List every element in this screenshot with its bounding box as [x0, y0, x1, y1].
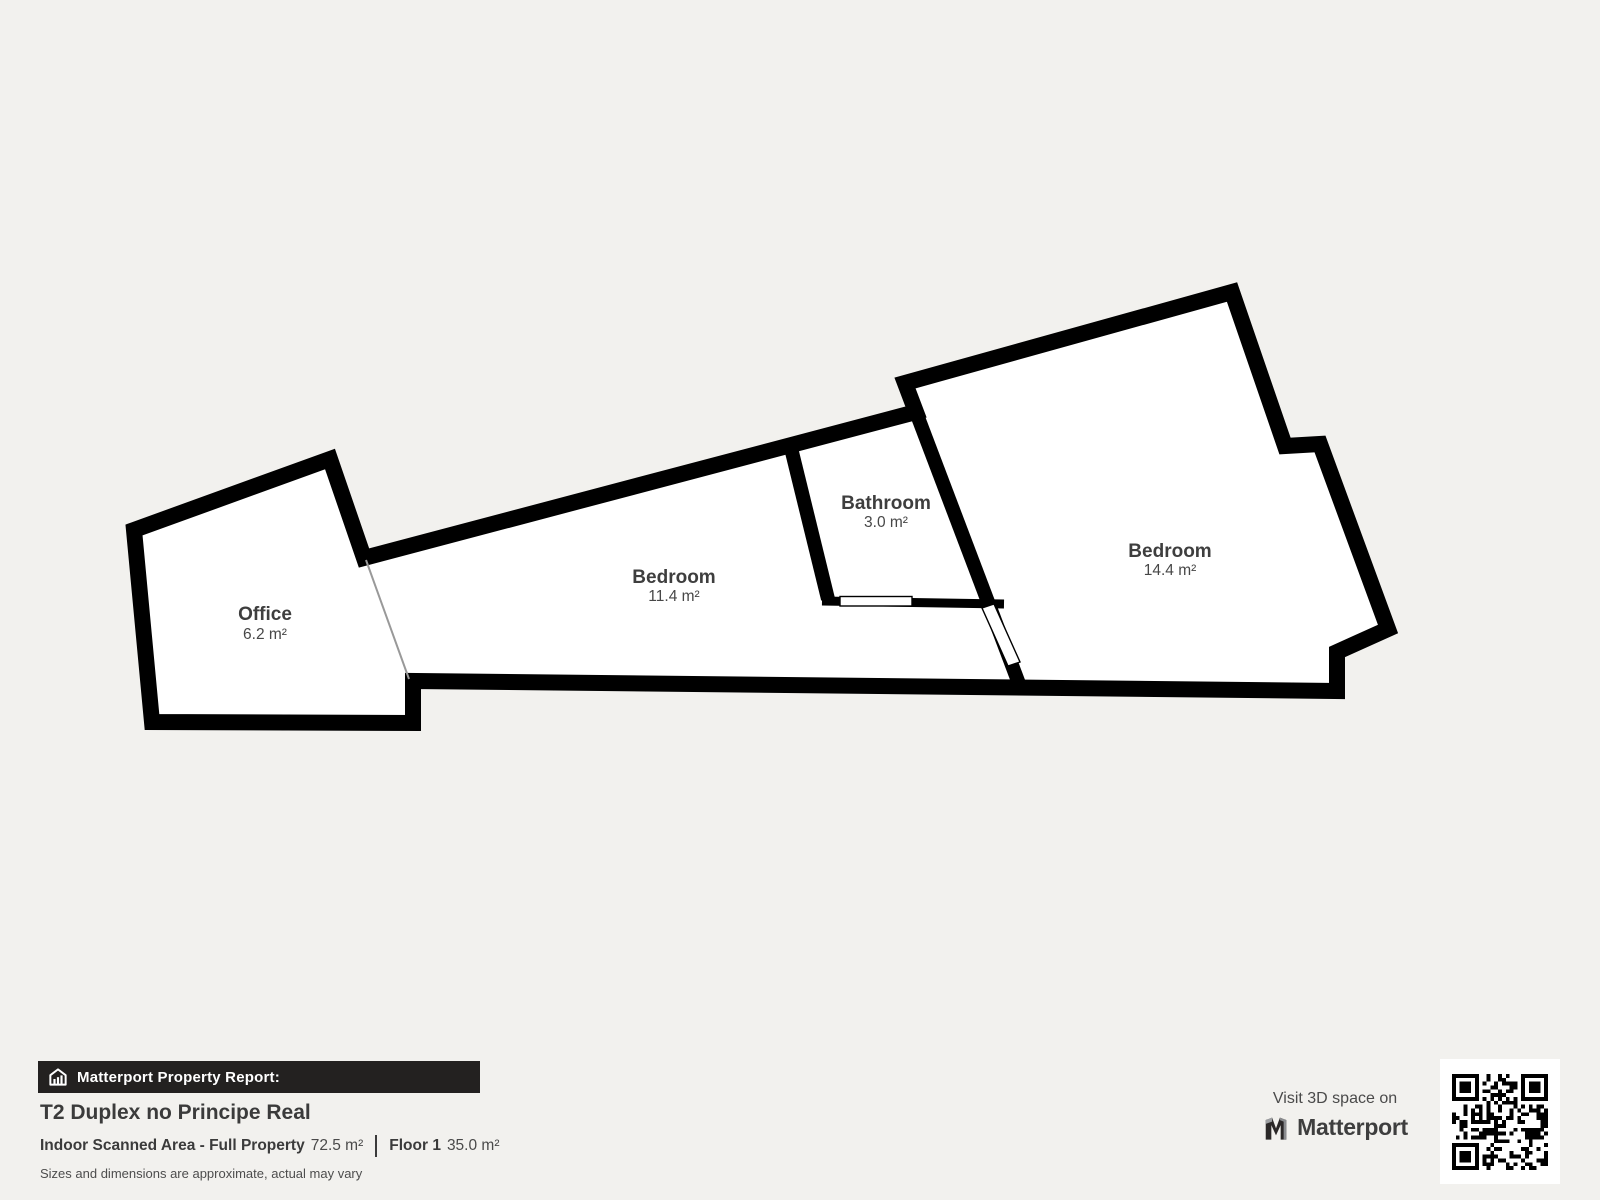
room-label-bedroom-2: Bedroom	[1128, 541, 1211, 562]
qr-code-pattern	[1452, 1074, 1548, 1170]
room-area-bedroom-2: 14.4 m²	[1144, 562, 1197, 579]
room-label-bathroom: Bathroom	[841, 493, 931, 514]
visit-3d-label: Visit 3D space on	[1243, 1090, 1427, 1108]
bathroom-window-icon	[840, 597, 912, 607]
disclaimer-text: Sizes and dimensions are approximate, ac…	[40, 1166, 362, 1181]
stats-divider	[375, 1135, 377, 1157]
room-area-office: 6.2 m²	[243, 626, 287, 643]
area-stats: Indoor Scanned Area - Full Property 72.5…	[40, 1135, 500, 1157]
floor-value: 35.0 m²	[447, 1137, 500, 1155]
unit-outline	[134, 292, 1388, 723]
qr-code	[1440, 1059, 1560, 1184]
matterport-floorplan-page: Office 6.2 m² Bedroom 11.4 m² Bathroom 3…	[0, 0, 1600, 1200]
scanned-area-label: Indoor Scanned Area - Full Property	[40, 1137, 305, 1155]
room-label-bedroom-1: Bedroom	[632, 567, 715, 588]
report-bar-label: Matterport Property Report:	[77, 1069, 280, 1086]
visit-3d-block: Visit 3D space on Matterport	[1243, 1090, 1427, 1141]
room-area-bathroom: 3.0 m²	[864, 514, 908, 531]
matterport-m-icon	[1262, 1113, 1290, 1141]
floor-plan: Office 6.2 m² Bedroom 11.4 m² Bathroom 3…	[0, 0, 1600, 1200]
room-area-bedroom-1: 11.4 m²	[648, 588, 699, 605]
house-bars-icon	[49, 1068, 67, 1086]
report-bar: Matterport Property Report:	[38, 1061, 480, 1093]
scanned-area-value: 72.5 m²	[311, 1137, 364, 1155]
property-title: T2 Duplex no Principe Real	[40, 1101, 311, 1125]
matterport-logo: Matterport	[1243, 1113, 1427, 1141]
floor-label: Floor 1	[389, 1137, 441, 1155]
matterport-wordmark: Matterport	[1297, 1114, 1408, 1141]
room-label-office: Office	[238, 604, 292, 625]
